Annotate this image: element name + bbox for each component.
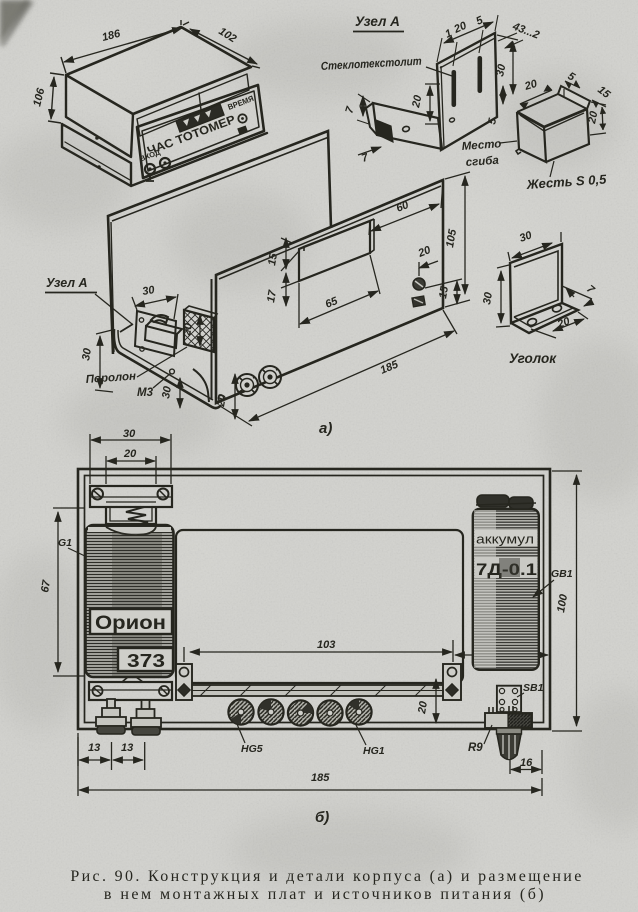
svg-text:SB1: SB1 [523, 682, 544, 694]
svg-text:103: 103 [317, 639, 335, 651]
svg-text:М3: М3 [137, 387, 154, 399]
svg-text:13: 13 [88, 742, 100, 754]
svg-text:G1: G1 [58, 537, 72, 549]
svg-text:а): а) [319, 420, 332, 437]
svg-text:GB1: GB1 [551, 568, 573, 580]
svg-text:16: 16 [520, 757, 533, 769]
svg-text:Уголок: Уголок [509, 351, 557, 366]
svg-text:HG1: HG1 [363, 745, 385, 757]
svg-text:сгиба: сгиба [465, 155, 499, 169]
svg-text:373: 373 [127, 651, 165, 671]
svg-text:в нем монтажных плат и источни: в нем монтажных плат и источников питани… [104, 886, 546, 903]
svg-text:R9: R9 [468, 742, 483, 754]
svg-text:Узел А: Узел А [46, 276, 88, 290]
svg-text:б): б) [315, 809, 329, 826]
svg-text:Рис. 90. Конструкция и детали: Рис. 90. Конструкция и детали корпуса (а… [70, 868, 583, 885]
svg-text:13: 13 [121, 742, 133, 754]
svg-text:30: 30 [123, 428, 136, 440]
svg-text:Узел А: Узел А [355, 14, 400, 29]
svg-text:Орион: Орион [95, 612, 166, 634]
svg-text:HG5: HG5 [241, 743, 263, 755]
svg-text:20: 20 [123, 448, 137, 460]
svg-text:185: 185 [311, 772, 330, 784]
svg-text:аккумул: аккумул [476, 532, 534, 547]
